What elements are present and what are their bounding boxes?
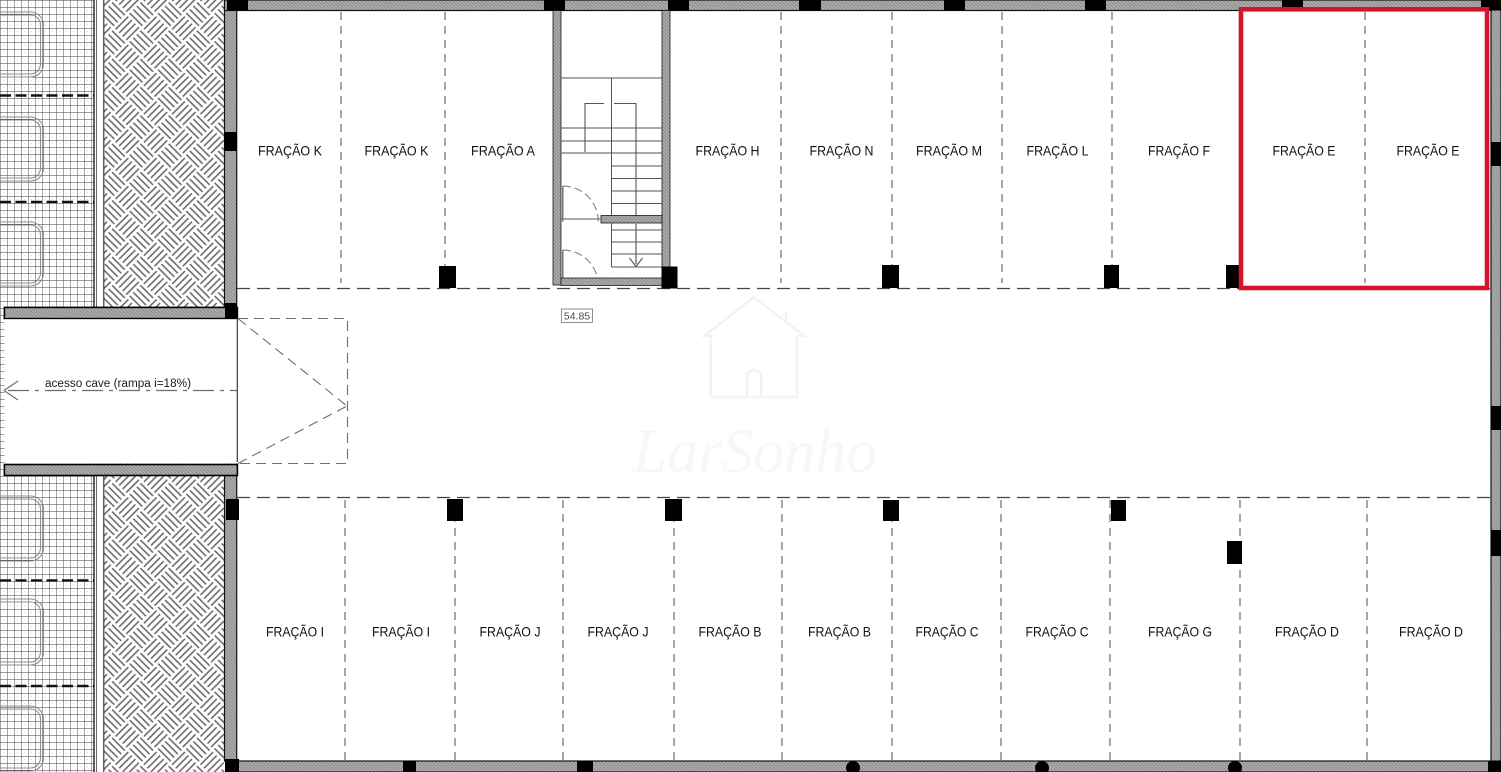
- svg-text:acesso cave (rampa i=18%): acesso cave (rampa i=18%): [45, 378, 191, 390]
- svg-text:FRAÇÃO L: FRAÇÃO L: [1027, 143, 1089, 159]
- svg-text:FRAÇÃO H: FRAÇÃO H: [696, 143, 760, 159]
- svg-text:FRAÇÃO K: FRAÇÃO K: [258, 143, 323, 159]
- svg-text:FRAÇÃO I: FRAÇÃO I: [372, 624, 430, 640]
- svg-text:FRAÇÃO C: FRAÇÃO C: [916, 624, 979, 640]
- svg-text:FRAÇÃO M: FRAÇÃO M: [916, 143, 982, 159]
- svg-text:FRAÇÃO E: FRAÇÃO E: [1397, 143, 1460, 159]
- svg-text:FRAÇÃO E: FRAÇÃO E: [1273, 143, 1336, 159]
- svg-text:FRAÇÃO N: FRAÇÃO N: [810, 143, 874, 159]
- svg-text:54.85: 54.85: [564, 311, 590, 323]
- svg-text:FRAÇÃO J: FRAÇÃO J: [588, 624, 649, 640]
- svg-text:FRAÇÃO A: FRAÇÃO A: [471, 143, 536, 159]
- svg-text:FRAÇÃO G: FRAÇÃO G: [1148, 624, 1212, 640]
- svg-text:FRAÇÃO D: FRAÇÃO D: [1275, 624, 1339, 640]
- svg-text:LarSonho: LarSonho: [632, 418, 878, 486]
- svg-text:FRAÇÃO C: FRAÇÃO C: [1026, 624, 1089, 640]
- svg-text:FRAÇÃO K: FRAÇÃO K: [365, 143, 430, 159]
- svg-text:FRAÇÃO J: FRAÇÃO J: [480, 624, 541, 640]
- svg-text:FRAÇÃO B: FRAÇÃO B: [699, 624, 762, 640]
- svg-text:FRAÇÃO D: FRAÇÃO D: [1399, 624, 1463, 640]
- svg-text:FRAÇÃO B: FRAÇÃO B: [808, 624, 871, 640]
- svg-text:FRAÇÃO I: FRAÇÃO I: [266, 624, 324, 640]
- svg-text:FRAÇÃO F: FRAÇÃO F: [1148, 143, 1210, 159]
